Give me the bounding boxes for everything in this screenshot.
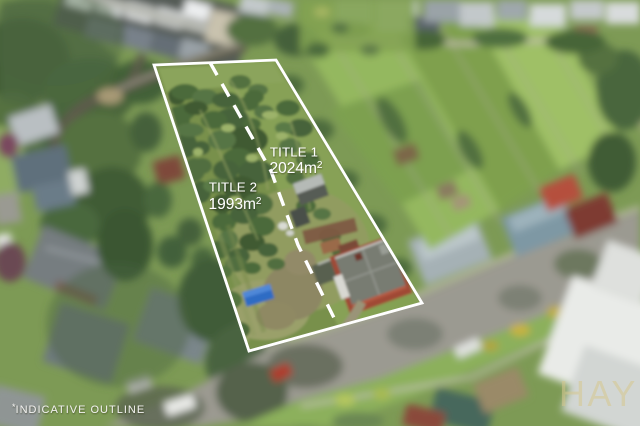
svg-text:1993m2: 1993m2 <box>209 196 262 213</box>
svg-text:2024m2: 2024m2 <box>270 160 323 177</box>
svg-text:TITLE 1: TITLE 1 <box>270 145 318 160</box>
svg-text:TITLE 2: TITLE 2 <box>209 180 257 195</box>
svg-text:*INDICATIVE OUTLINE: *INDICATIVE OUTLINE <box>12 402 145 416</box>
svg-text:HAY: HAY <box>559 373 638 414</box>
